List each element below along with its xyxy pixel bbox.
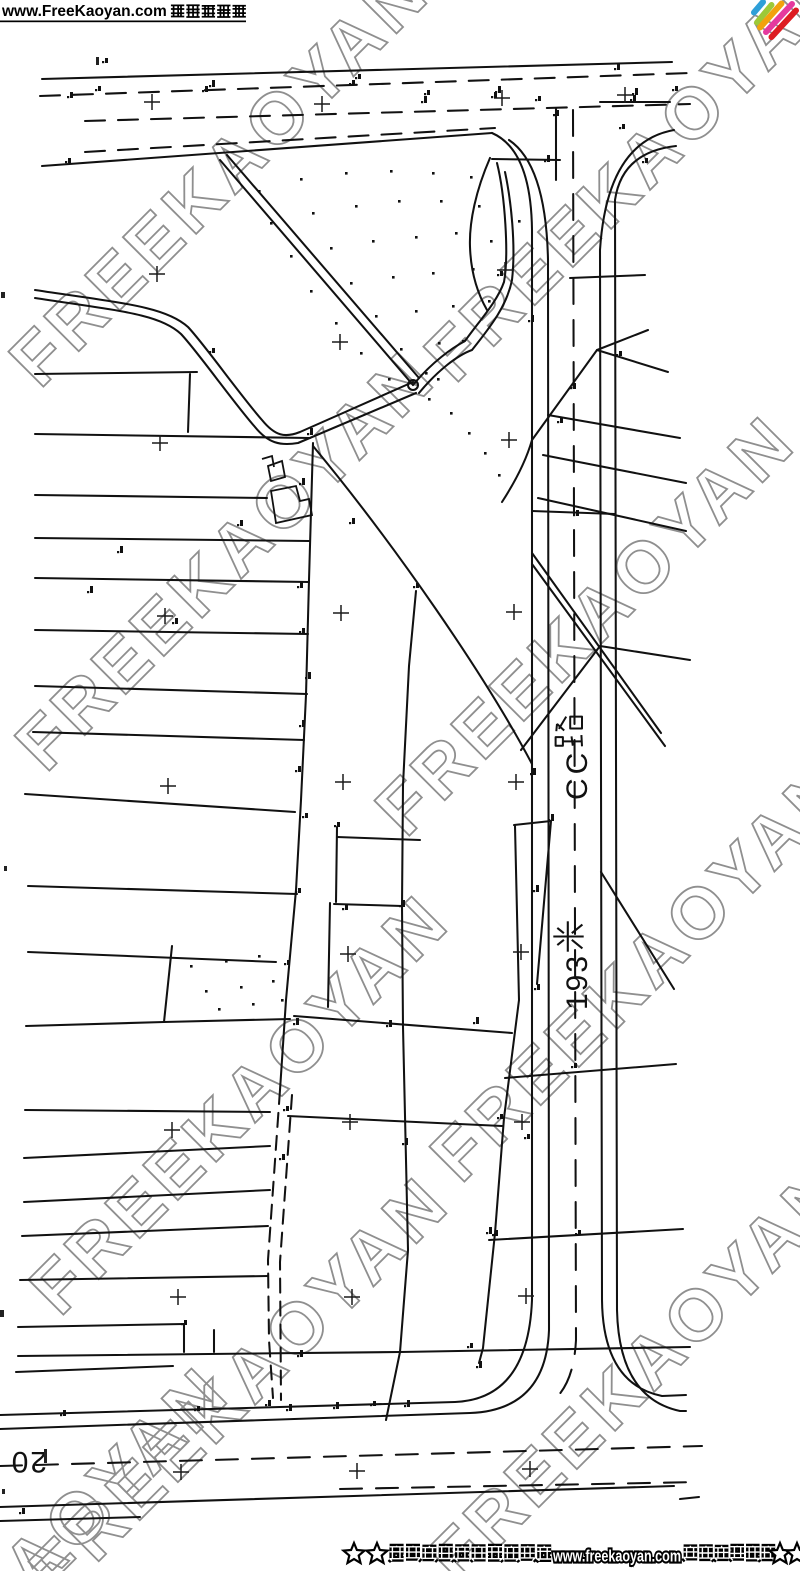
svg-text:193: 193 xyxy=(561,954,594,1010)
svg-text:www.freekaoyan.com: www.freekaoyan.com xyxy=(552,1548,681,1566)
svg-text:www.FreeKaoyan.com: www.FreeKaoyan.com xyxy=(1,3,167,20)
svg-text:20: 20 xyxy=(10,1445,47,1478)
svg-text:CC: CC xyxy=(561,749,594,800)
